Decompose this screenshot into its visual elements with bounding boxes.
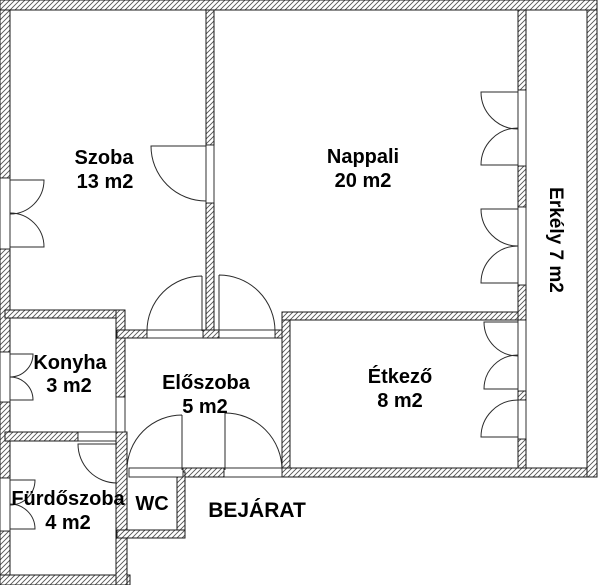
window-opening-nappali-1 (518, 90, 526, 166)
wall-etkezo-top (282, 312, 526, 320)
room-label-wc: WC (135, 493, 168, 515)
door-arc-szoba-nappali (151, 146, 206, 201)
wall-top (0, 0, 597, 10)
room-label-konyha: Konyha (33, 352, 107, 374)
wall-wc-right (177, 472, 185, 530)
door-opening-szoba-nappali (206, 145, 214, 203)
wall-erkely-inner (518, 10, 526, 90)
door-arc-wc (127, 415, 182, 470)
room-area-konyha: 3 m2 (46, 375, 92, 397)
window-pane (481, 209, 518, 246)
wall-left (0, 10, 10, 178)
wall-left (0, 249, 10, 352)
room-label-erkely: Erkély 7 m2 (545, 187, 566, 293)
wall-szoba-nappali (206, 10, 214, 145)
wall-left (0, 531, 10, 575)
window-pane (481, 400, 518, 437)
door-opening-entrance (224, 468, 282, 477)
window-pane (10, 180, 44, 214)
room-label-nappali: Nappali (327, 146, 399, 168)
wall-erkely-inner (518, 285, 526, 320)
entrance-label: BEJÁRAT (208, 499, 306, 522)
wall-bottom (183, 468, 224, 477)
door-opening-konyha (116, 397, 125, 432)
window-pane (481, 128, 518, 165)
wall-szoba-nappali (206, 203, 214, 330)
window-opening-furdoszoba (0, 478, 10, 531)
door-arc-entrance (225, 413, 282, 470)
window-pane (484, 355, 518, 389)
room-label-eloszoba: Előszoba (162, 372, 251, 394)
window-pane (10, 377, 33, 400)
door-opening-nappali (219, 330, 275, 338)
window-pane (10, 354, 33, 377)
door-arc-szoba (147, 276, 202, 331)
door-arc-nappali (219, 275, 275, 331)
room-label-furdoszoba: Fürdőszoba (11, 488, 125, 510)
door-arc-furdoszoba (78, 444, 117, 483)
window-opening-konyha (0, 352, 10, 402)
wall-konyha-furdoszoba (5, 432, 78, 441)
wall-erkely-inner (518, 166, 526, 207)
floor-plan: Szoba 13 m2 Nappali 20 m2 Erkély 7 m2 Ko… (0, 0, 600, 585)
room-area-furdoszoba: 4 m2 (45, 512, 91, 534)
wall-eloszoba-top (203, 330, 219, 338)
window-opening-nappali-2 (518, 207, 526, 285)
room-area-etkezo: 8 m2 (377, 390, 423, 412)
wall-erkely-inner (518, 391, 526, 400)
room-label-szoba: Szoba (75, 147, 135, 169)
room-area-nappali: 20 m2 (335, 170, 392, 192)
wall-bottom-left (0, 575, 130, 585)
door-opening-szoba (147, 330, 203, 338)
window-pane (484, 322, 518, 356)
wall-szoba-konyha (5, 310, 123, 318)
wall-erkely-inner (518, 439, 526, 468)
door-opening-furdoszoba (78, 432, 116, 441)
room-label-etkezo: Étkező (368, 365, 432, 388)
window-pane (481, 92, 518, 129)
window-opening-etkezo-1 (518, 320, 526, 391)
wall-eloszoba-top (117, 330, 147, 338)
wall-wc-bottom (117, 530, 185, 538)
window-opening-etkezo-2 (518, 400, 526, 439)
window-pane (481, 246, 518, 283)
room-area-eloszoba: 5 m2 (182, 396, 228, 418)
window-opening-szoba (0, 178, 10, 249)
wall-bottom (282, 468, 597, 477)
door-opening-wc (129, 468, 183, 477)
wall-right (587, 10, 597, 477)
window-pane (10, 213, 44, 247)
room-area-szoba: 13 m2 (77, 171, 134, 193)
wall-eloszoba-right (282, 312, 290, 468)
floor-plan-drawing: Szoba 13 m2 Nappali 20 m2 Erkély 7 m2 Ko… (0, 0, 600, 585)
wall-konyha-eloszoba (116, 310, 125, 397)
